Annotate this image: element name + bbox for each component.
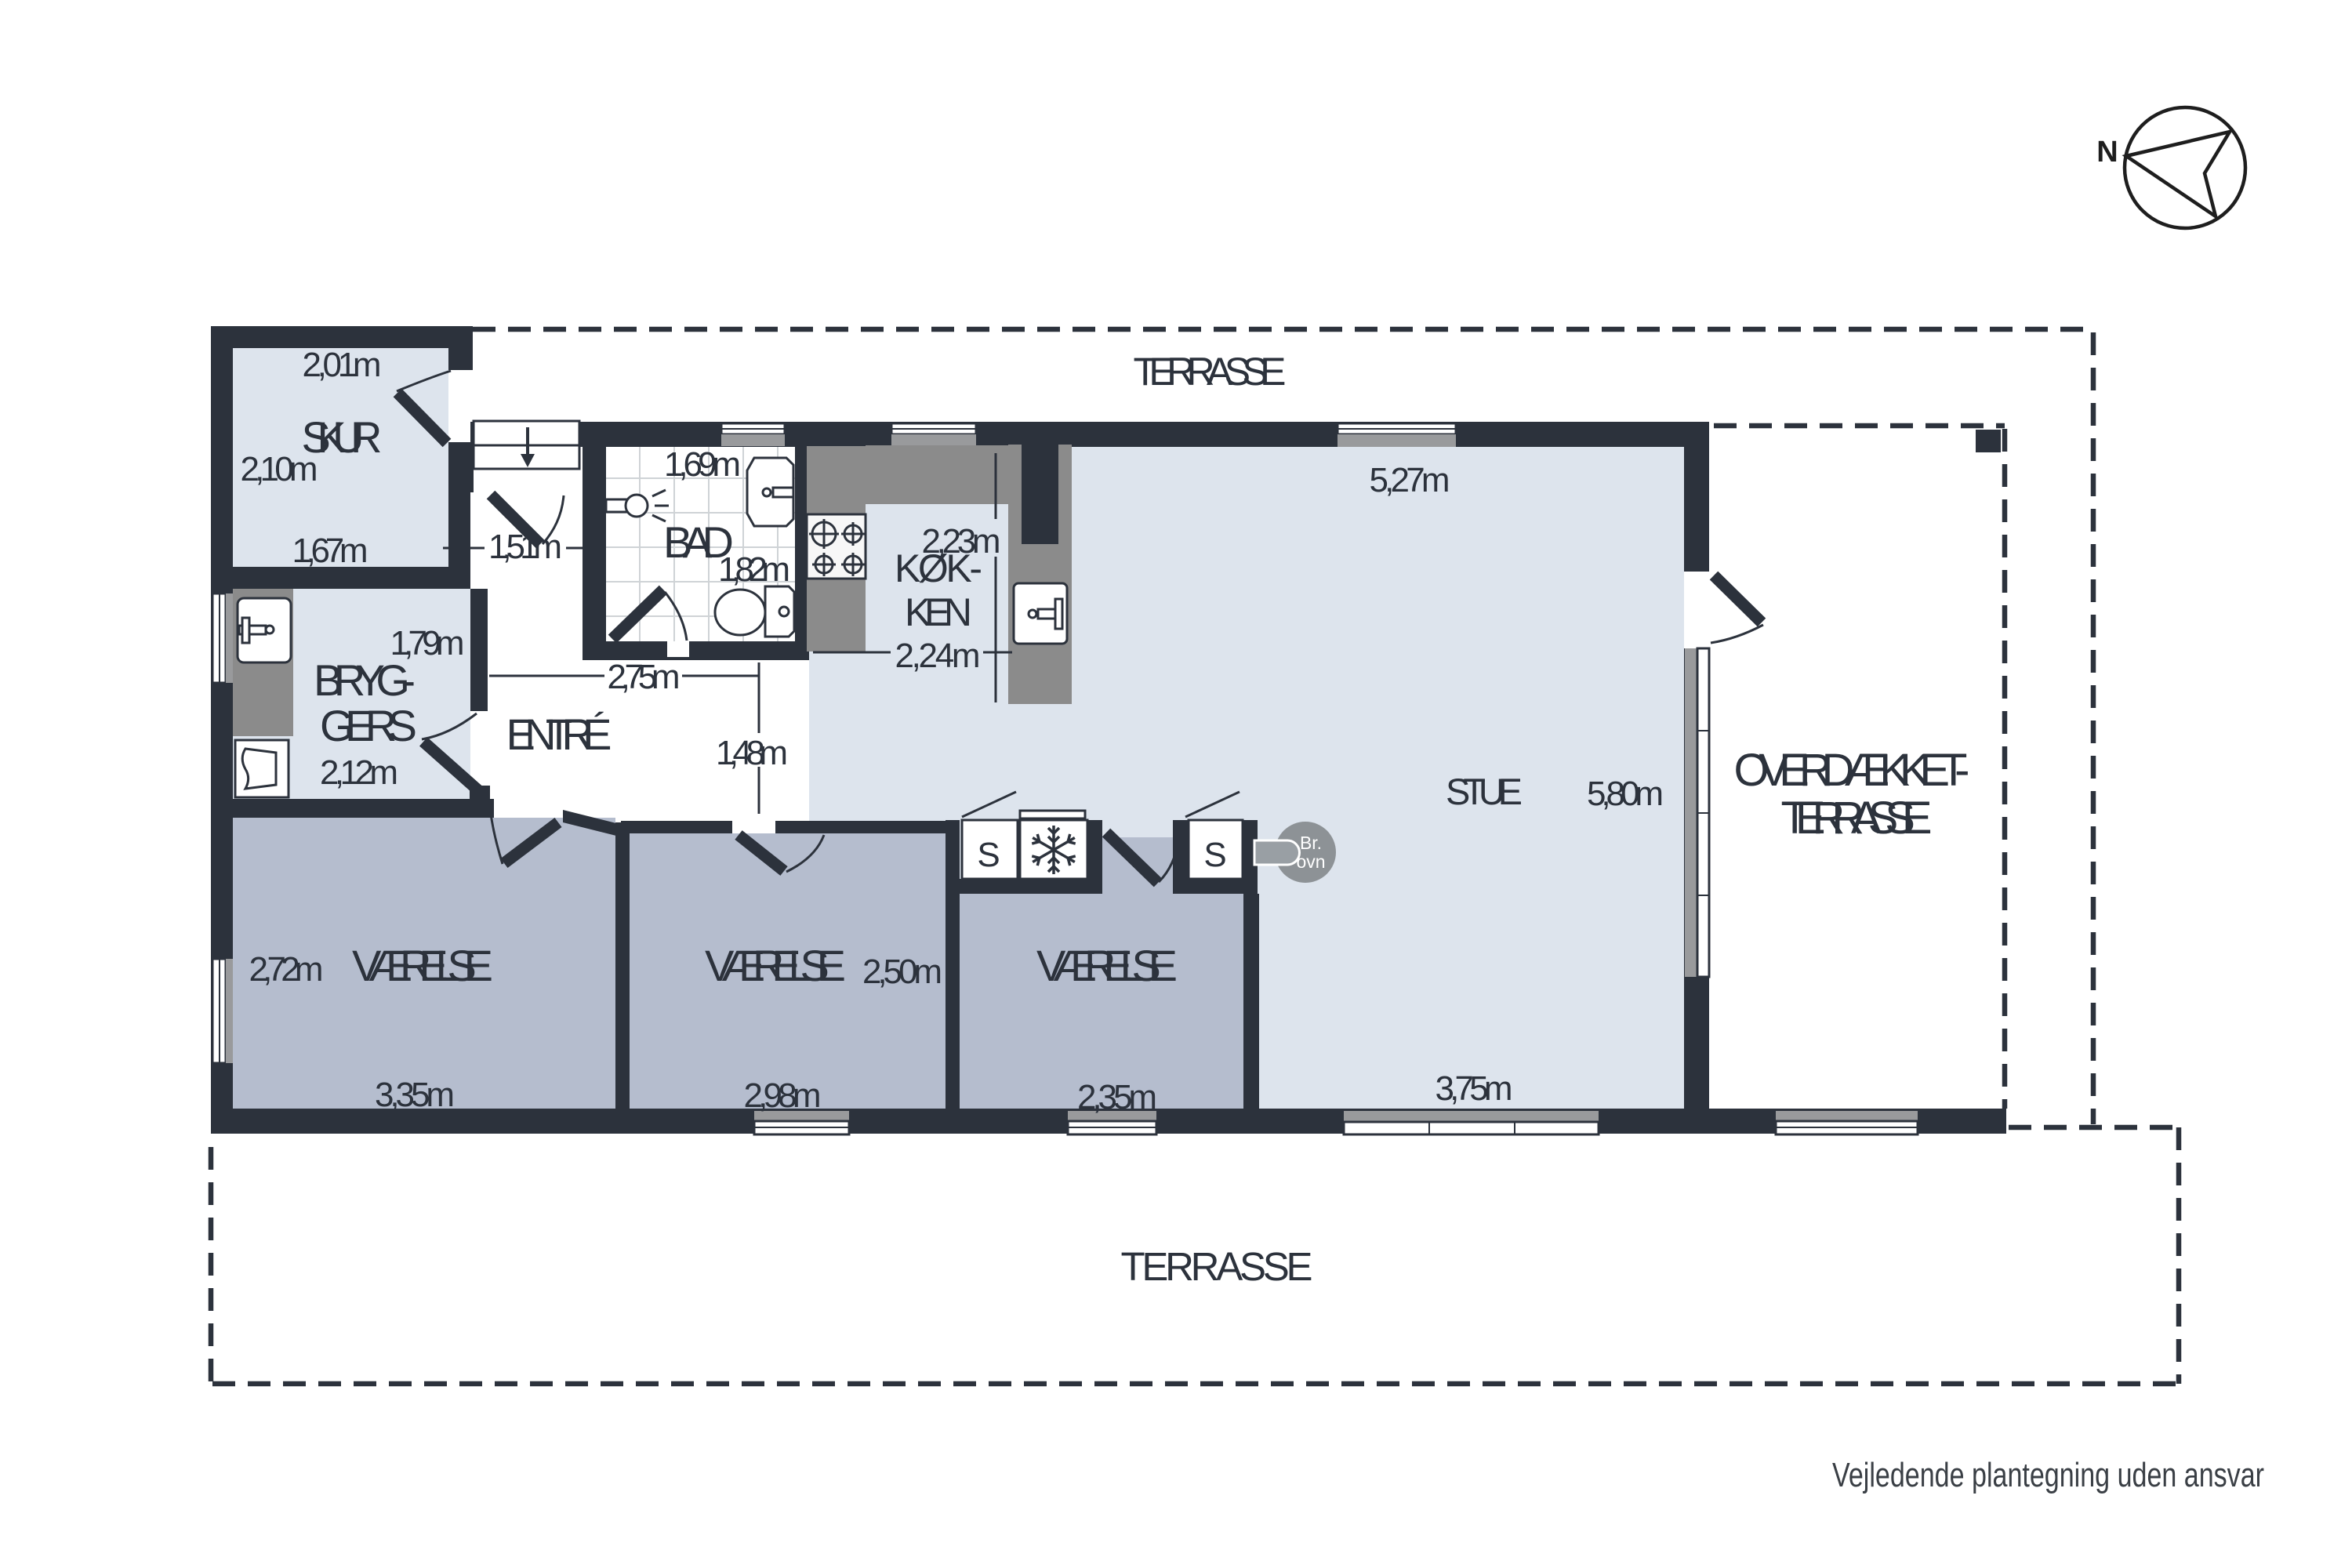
svg-text:1,67m: 1,67m xyxy=(292,532,368,570)
svg-text:N: N xyxy=(2096,136,2118,169)
svg-text:VÆRELSE: VÆRELSE xyxy=(1036,941,1178,990)
svg-text:1,51m: 1,51m xyxy=(488,528,562,566)
svg-text:STUE: STUE xyxy=(1446,771,1523,812)
svg-text:5,27m: 5,27m xyxy=(1370,461,1450,499)
svg-text:TERRASSE: TERRASSE xyxy=(1781,793,1933,844)
svg-text:TERRASSE: TERRASSE xyxy=(1134,350,1287,394)
svg-text:KEN: KEN xyxy=(905,590,972,634)
svg-text:5,80m: 5,80m xyxy=(1587,775,1664,813)
svg-text:2,50m: 2,50m xyxy=(862,953,942,991)
svg-text:ovn: ovn xyxy=(1296,851,1325,872)
svg-text:BRYG-: BRYG- xyxy=(314,655,416,705)
svg-text:1,69m: 1,69m xyxy=(664,445,741,484)
svg-text:OVERDÆKKET-: OVERDÆKKET- xyxy=(1734,745,1970,796)
svg-text:1,48m: 1,48m xyxy=(716,734,788,772)
svg-text:2,75m: 2,75m xyxy=(608,658,681,696)
svg-text:VÆRELSE: VÆRELSE xyxy=(705,941,846,990)
svg-text:GERS: GERS xyxy=(320,701,417,750)
svg-text:1,79m: 1,79m xyxy=(390,624,465,662)
svg-text:2,24m: 2,24m xyxy=(895,637,981,675)
svg-text:VÆRELSE: VÆRELSE xyxy=(352,941,493,990)
svg-text:2,10m: 2,10m xyxy=(241,450,318,488)
svg-text:2,98m: 2,98m xyxy=(744,1076,822,1115)
svg-text:Br.: Br. xyxy=(1300,833,1322,853)
svg-text:ENTRÉ: ENTRÉ xyxy=(506,710,612,759)
svg-text:2,23m: 2,23m xyxy=(922,522,1001,561)
svg-text:2,35m: 2,35m xyxy=(1077,1078,1157,1116)
svg-text:S: S xyxy=(977,836,1000,874)
svg-text:Vejledende plantegning uden an: Vejledende plantegning uden ansvar xyxy=(1832,1456,2264,1494)
svg-text:3,35m: 3,35m xyxy=(375,1076,455,1114)
svg-text:2,01m: 2,01m xyxy=(303,346,382,384)
svg-text:3,75m: 3,75m xyxy=(1436,1069,1513,1108)
svg-text:TERRASSE: TERRASSE xyxy=(1121,1244,1313,1289)
svg-text:2,72m: 2,72m xyxy=(249,950,324,989)
svg-text:S: S xyxy=(1203,836,1226,874)
svg-text:2,12m: 2,12m xyxy=(320,753,398,792)
svg-text:1,82m: 1,82m xyxy=(718,550,790,589)
